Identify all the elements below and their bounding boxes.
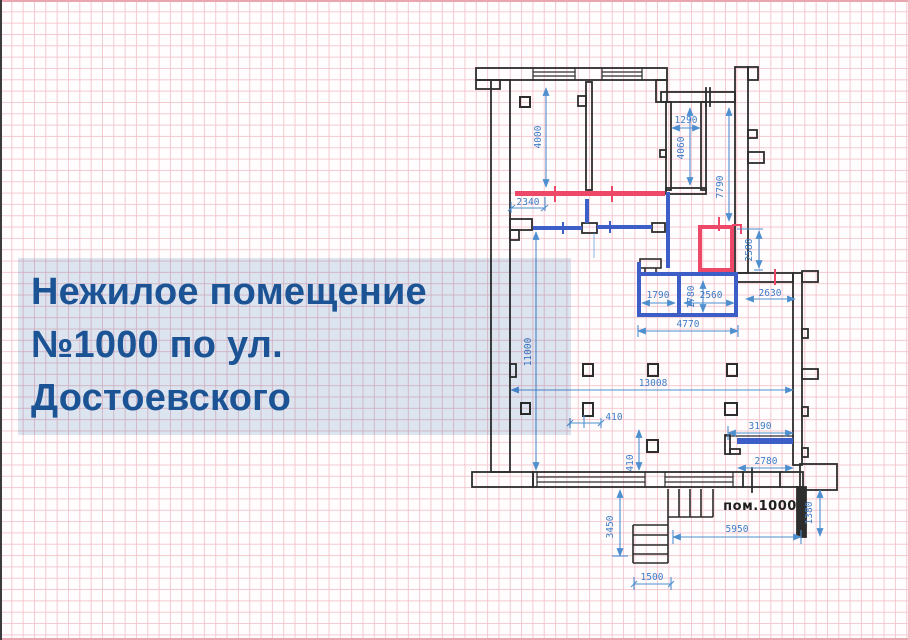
dim-2560: 2560 xyxy=(700,290,723,301)
top-window-1 xyxy=(533,68,575,80)
room-number-label: пом.1000 xyxy=(723,499,797,514)
sink-symbol xyxy=(640,259,661,273)
title-line-1: Нежилое помещение xyxy=(31,266,571,319)
page-title: Нежилое помещение №1000 по ул. Достоевск… xyxy=(31,266,571,425)
dim-4000: 4000 xyxy=(533,125,544,148)
dim-2580: 2580 xyxy=(744,238,755,261)
dim-410-horizontal: 410 xyxy=(605,412,622,423)
page-edge-left xyxy=(0,0,2,640)
dim-1780: 1780 xyxy=(686,285,697,308)
dim-3190: 3190 xyxy=(749,421,772,432)
dim-5950: 5950 xyxy=(726,524,749,535)
new-partitions-blue xyxy=(533,192,793,444)
dim-2780: 2780 xyxy=(755,456,778,467)
dim-1790: 1790 xyxy=(647,290,670,301)
dim-2340: 2340 xyxy=(517,197,540,208)
title-line-2: №1000 по ул. xyxy=(31,319,571,372)
dim-3450: 3450 xyxy=(605,515,616,538)
bottom-window-1 xyxy=(537,472,645,487)
dim-410-vertical: 410 xyxy=(625,454,636,471)
dim-2630: 2630 xyxy=(759,288,782,299)
dim-1380: 1380 xyxy=(804,501,815,524)
dim-1500: 1500 xyxy=(641,572,664,583)
bottom-window-2 xyxy=(665,472,733,487)
dim-7790: 7790 xyxy=(715,175,726,198)
dim-4770: 4770 xyxy=(677,319,700,330)
top-window-2 xyxy=(602,68,642,80)
stairs xyxy=(633,489,713,563)
title-line-3: Достоевского xyxy=(31,372,571,425)
dim-1290: 1290 xyxy=(675,115,698,126)
dim-13008: 13008 xyxy=(639,378,668,389)
dim-4060: 4060 xyxy=(676,136,687,159)
